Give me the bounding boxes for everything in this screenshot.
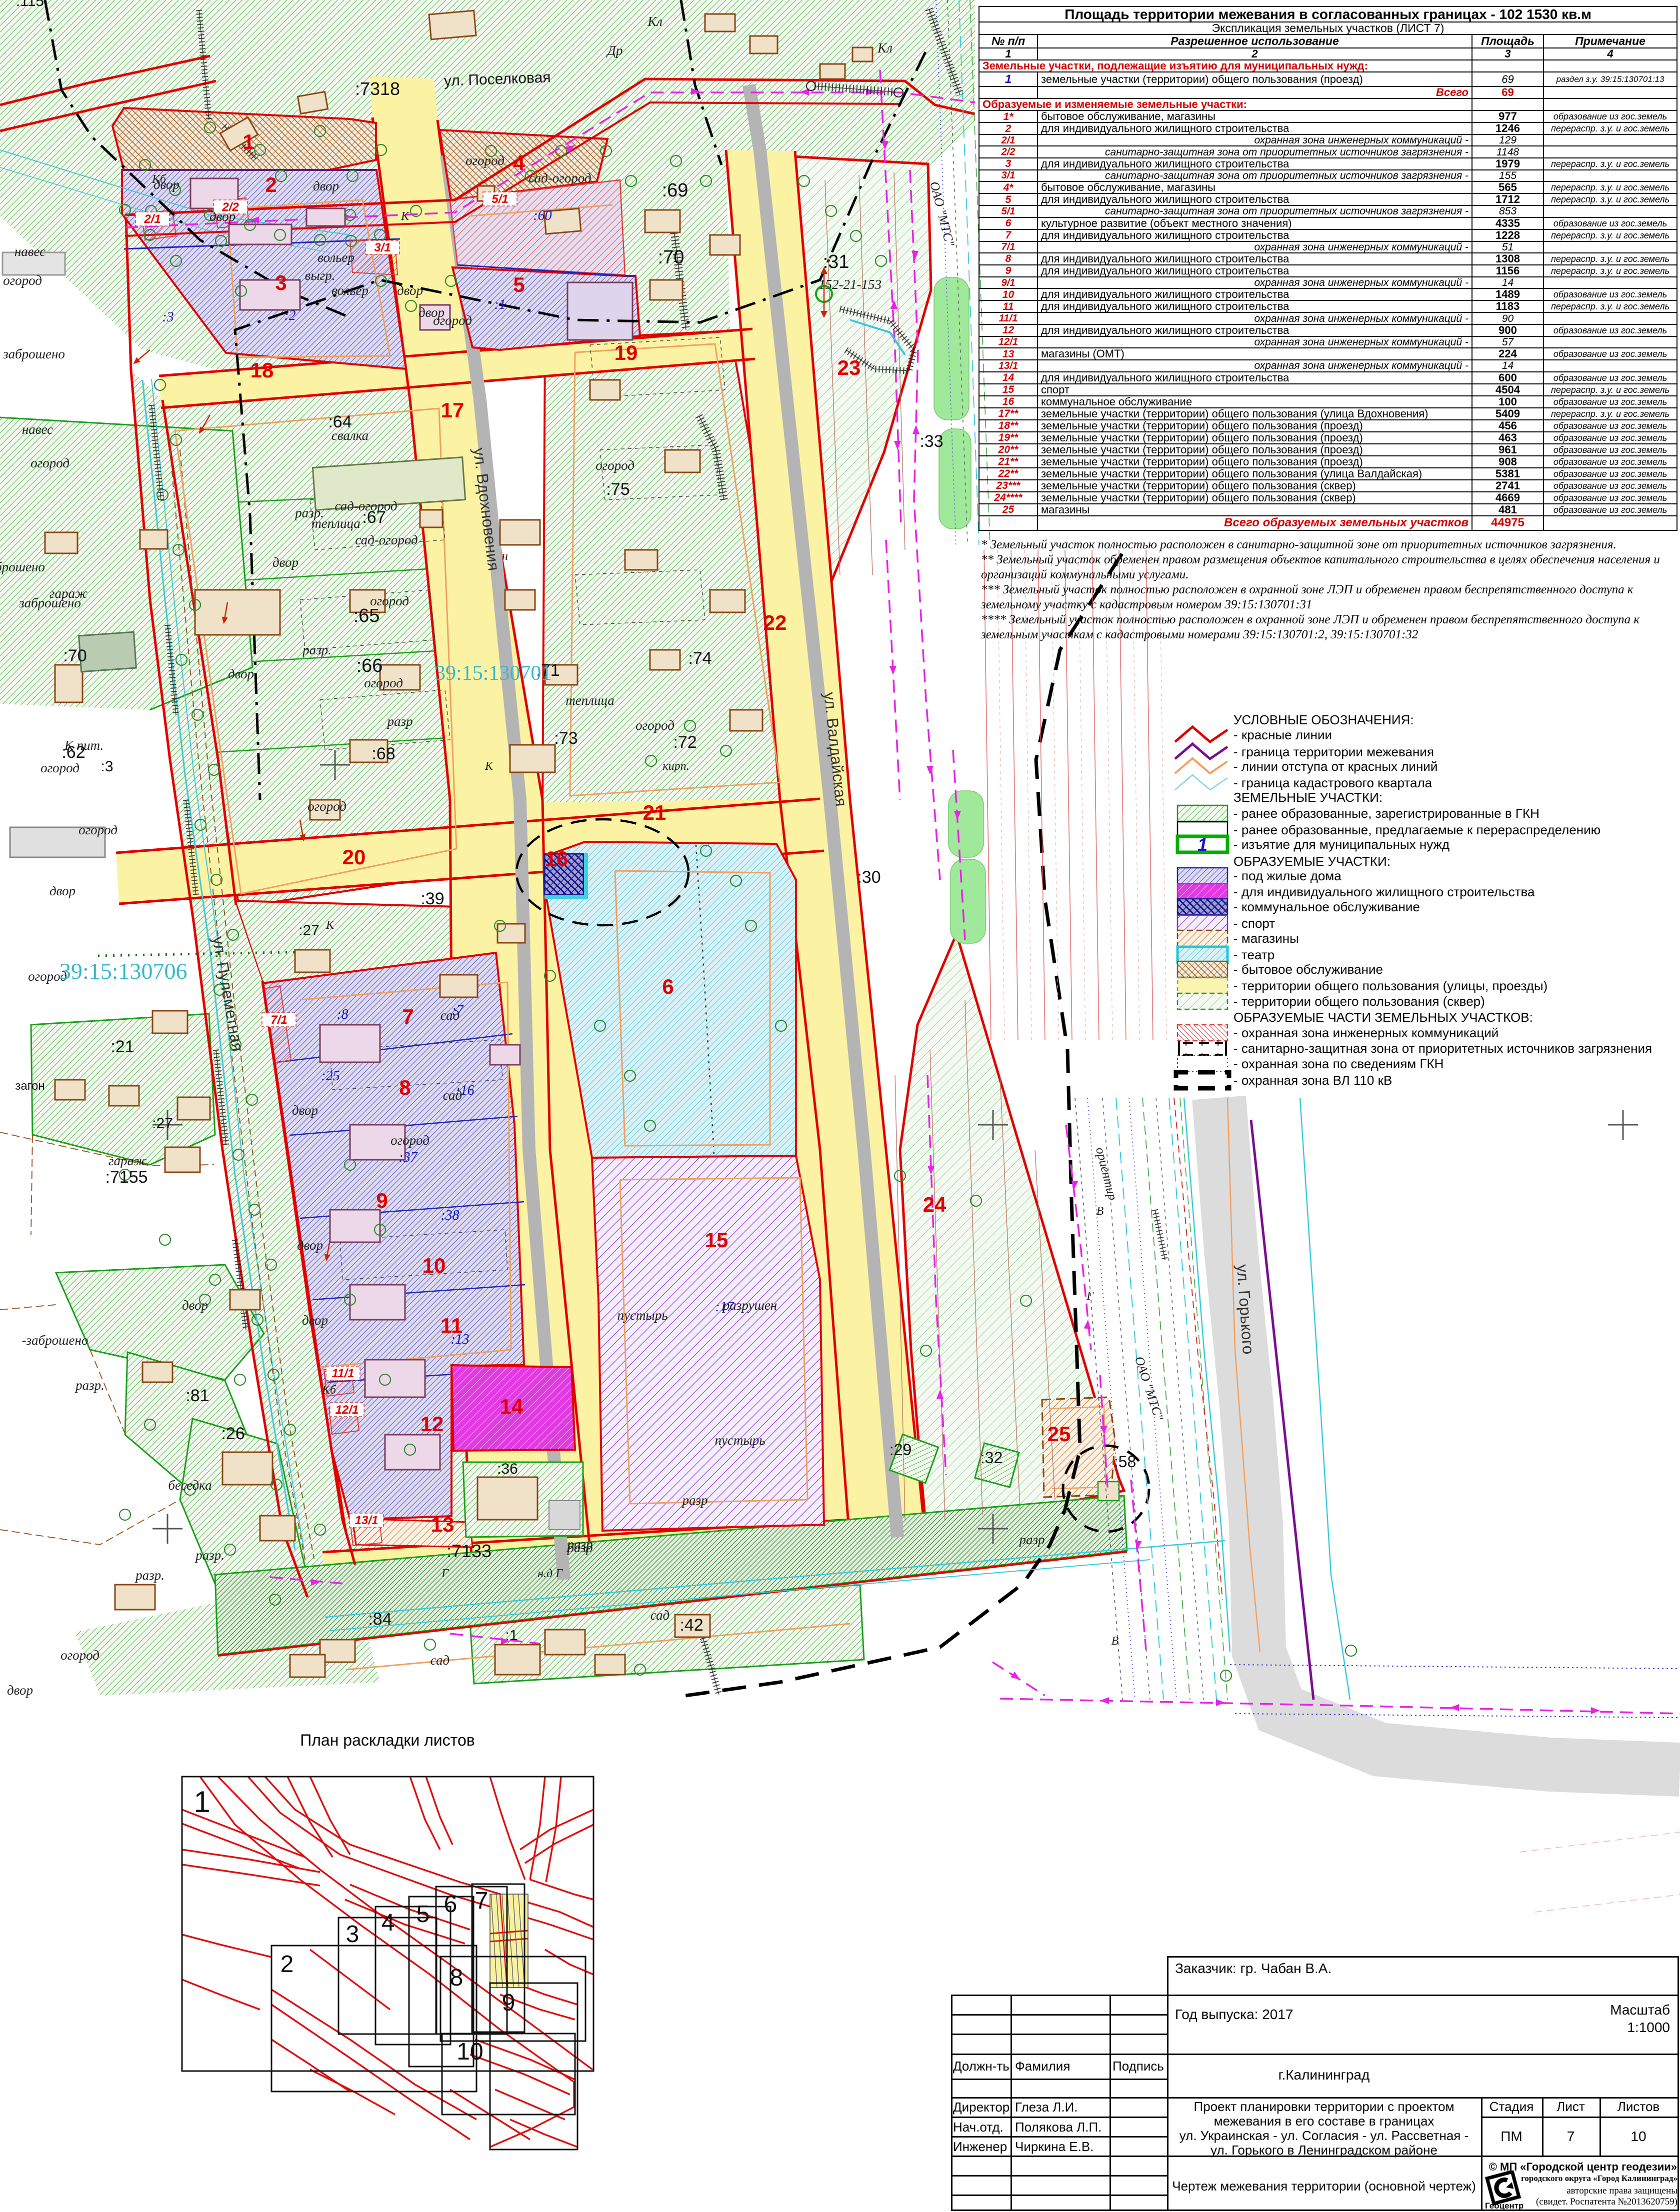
svg-text:УСЛОВНЫЕ ОБОЗНАЧЕНИЯ:: УСЛОВНЫЕ ОБОЗНАЧЕНИЯ:	[1233, 712, 1414, 727]
svg-text::70: :70	[63, 646, 86, 665]
svg-text::1: :1	[505, 1627, 517, 1644]
svg-text:9: 9	[376, 1189, 387, 1212]
svg-text:ЗЕМЕЛЬНЫЕ УЧАСТКИ:: ЗЕМЕЛЬНЫЕ УЧАСТКИ:	[1233, 790, 1382, 805]
svg-text:- под жилые дома: - под жилые дома	[1233, 868, 1341, 883]
svg-text:двор: двор	[7, 1683, 33, 1698]
svg-text:13/1: 13/1	[355, 1514, 378, 1527]
svg-text:- театр: - театр	[1233, 947, 1274, 962]
svg-text::31: :31	[823, 251, 849, 272]
svg-text::42: :42	[679, 1616, 703, 1635]
svg-text:9: 9	[502, 1990, 515, 2016]
svg-text::74: :74	[688, 649, 711, 668]
svg-text:- коммунальное обслуживание: - коммунальное обслуживание	[1233, 899, 1420, 914]
svg-text:- граница кадастрового квартал: - граница кадастрового квартала	[1233, 775, 1432, 790]
svg-text:огород: огород	[370, 593, 409, 608]
svg-text:двор: двор	[209, 209, 235, 224]
svg-text::29: :29	[889, 1441, 911, 1459]
svg-text::72: :72	[673, 733, 696, 752]
svg-text:огород: огород	[595, 458, 634, 473]
svg-text:24: 24	[923, 1193, 946, 1216]
svg-text:152-21-153: 152-21-153	[818, 277, 881, 292]
svg-text:+: +	[1199, 1037, 1205, 1049]
svg-text::8: :8	[336, 1007, 348, 1022]
svg-text::33: :33	[919, 432, 943, 451]
svg-text:К: К	[325, 919, 335, 932]
svg-text:- спорт: - спорт	[1233, 916, 1275, 931]
svg-text:двор: двор	[272, 555, 298, 570]
svg-text:- территории общего пользовани: - территории общего пользования (сквер)	[1233, 994, 1485, 1009]
svg-text:- охранная зона инженерных ком: - охранная зона инженерных коммуникаций	[1233, 1025, 1498, 1040]
svg-text:К пит.: К пит.	[64, 738, 103, 753]
svg-text:огород: огород	[465, 153, 504, 168]
svg-text:3: 3	[275, 271, 286, 294]
svg-text:14: 14	[500, 1395, 523, 1418]
svg-text::26: :26	[221, 1424, 244, 1443]
svg-text:Др: Др	[606, 43, 623, 58]
svg-text:- красные линии: - красные линии	[1233, 727, 1332, 742]
svg-text::66: :66	[356, 655, 383, 676]
svg-text:20: 20	[342, 845, 366, 869]
svg-text:7: 7	[402, 1005, 413, 1028]
svg-text::30: :30	[857, 868, 880, 887]
svg-text:3/1: 3/1	[374, 241, 390, 254]
svg-text:- бытовое обслуживание: - бытовое обслуживание	[1233, 962, 1383, 977]
svg-text::70: :70	[658, 247, 684, 268]
svg-text:5: 5	[416, 1901, 430, 1928]
svg-text:3: 3	[346, 1921, 359, 1948]
svg-text:+: +	[1183, 1037, 1189, 1049]
svg-text::7155: :7155	[105, 1168, 147, 1187]
svg-text::115: :115	[16, 0, 44, 9]
svg-text:разр: разр	[386, 714, 412, 729]
svg-text::58: :58	[1114, 1453, 1136, 1471]
svg-text:Г: Г	[441, 1567, 449, 1580]
svg-text::81: :81	[185, 1386, 209, 1405]
svg-text:навес: навес	[14, 244, 45, 259]
svg-text::75: :75	[606, 480, 629, 499]
svg-text:теплица: теплица	[565, 693, 614, 708]
svg-text:огород: огород	[635, 718, 674, 733]
svg-text:разр.: разр.	[301, 642, 331, 657]
svg-text:двор: двор	[182, 1298, 208, 1313]
svg-text:ОБРАЗУЕМЫЕ ЧАСТИ ЗЕМЕЛЬНЫХ УЧА: ОБРАЗУЕМЫЕ ЧАСТИ ЗЕМЕЛЬНЫХ УЧАСТКОВ:	[1233, 1010, 1533, 1025]
svg-text:двор: двор	[292, 1103, 318, 1118]
svg-text:Геоцентр: Геоцентр	[1485, 2201, 1523, 2210]
svg-text:К: К	[400, 210, 410, 223]
svg-text:ОБРАЗУЕМЫЕ УЧАСТКИ:: ОБРАЗУЕМЫЕ УЧАСТКИ:	[1233, 854, 1390, 869]
svg-text:разр: разр	[566, 1537, 592, 1552]
svg-text:вольер: вольер	[317, 250, 354, 265]
svg-text:10: 10	[456, 2039, 483, 2065]
svg-text:Кл: Кл	[877, 40, 892, 55]
svg-text:+: +	[1215, 1037, 1221, 1049]
svg-text:двор: двор	[297, 1238, 323, 1253]
svg-text:- охранная зона ВЛ 110 кВ: - охранная зона ВЛ 110 кВ	[1233, 1073, 1392, 1088]
svg-text:разр: разр	[1018, 1532, 1044, 1547]
svg-text:гараж: гараж	[108, 1153, 146, 1168]
svg-text:сад: сад	[650, 1608, 669, 1623]
svg-text:8: 8	[399, 1076, 410, 1099]
svg-text:Кб: Кб	[151, 173, 166, 186]
svg-text::2: :2	[284, 308, 295, 323]
svg-text:7: 7	[475, 1888, 488, 1914]
svg-text:огород: огород	[3, 273, 42, 288]
svg-text:К: К	[484, 760, 494, 773]
svg-text:- территории общего пользовани: - территории общего пользования (улицы, …	[1233, 978, 1547, 993]
svg-text::1: :1	[494, 297, 505, 312]
svg-text:двор: двор	[397, 283, 423, 298]
svg-text:6: 6	[444, 1891, 457, 1918]
svg-text:19: 19	[614, 341, 638, 364]
svg-text:11/1: 11/1	[332, 1367, 354, 1380]
svg-text::16: :16	[455, 1083, 474, 1098]
svg-text:сад-огород: сад-огород	[334, 498, 397, 513]
svg-text:15: 15	[705, 1228, 728, 1252]
svg-text:разр.: разр.	[294, 505, 324, 520]
svg-text:1: 1	[1197, 834, 1207, 855]
svg-text:39:15:130706: 39:15:130706	[59, 958, 187, 984]
svg-text:25: 25	[1047, 1422, 1071, 1446]
svg-text:сад-огород: сад-огород	[528, 170, 591, 185]
svg-text::7: :7	[451, 1003, 463, 1018]
svg-text::25: :25	[321, 1068, 339, 1084]
svg-text::39: :39	[420, 889, 444, 908]
svg-text:5/1: 5/1	[491, 192, 508, 206]
svg-text:В: В	[1096, 1205, 1104, 1218]
svg-text:2: 2	[280, 1951, 294, 1978]
svg-text:1: 1	[242, 130, 254, 153]
svg-text::65: :65	[353, 605, 380, 626]
svg-text:сад: сад	[430, 1653, 449, 1668]
svg-text:План раскладки листов: План раскладки листов	[300, 1731, 475, 1749]
svg-text:гараж: гараж	[49, 586, 87, 601]
svg-text:загон: загон	[15, 1079, 44, 1093]
svg-text:23: 23	[837, 356, 861, 379]
svg-text:разр: разр	[681, 1493, 707, 1508]
svg-text:2/1: 2/1	[143, 212, 160, 226]
svg-text:заброшено: заброшено	[2, 346, 65, 361]
svg-text:- ранее образованные, зарегист: - ранее образованные, зарегистрированные…	[1233, 806, 1539, 821]
svg-text:н: н	[502, 550, 508, 563]
svg-text:выгр.: выгр.	[305, 268, 335, 283]
svg-text:- санитарно-защитная зона от п: - санитарно-защитная зона от приоритетны…	[1233, 1041, 1652, 1056]
svg-text:5: 5	[513, 273, 524, 296]
svg-text:н.д Г: н.д Г	[537, 1567, 563, 1580]
svg-text:свалка: свалка	[331, 428, 368, 443]
svg-text:огород: огород	[364, 675, 403, 690]
svg-text:огород: огород	[78, 822, 117, 837]
svg-text:- ранее образованные, предлага: - ранее образованные, предлагаемые к пер…	[1233, 822, 1600, 837]
svg-text:- магазины: - магазины	[1233, 931, 1299, 946]
svg-text:брошено: брошено	[0, 559, 45, 574]
svg-text::13: :13	[450, 1332, 469, 1347]
svg-text::21: :21	[110, 1037, 134, 1056]
svg-text::38: :38	[440, 1208, 459, 1223]
svg-text:пустырь: пустырь	[617, 1308, 667, 1323]
svg-text::36: :36	[497, 1461, 518, 1477]
svg-text:двор: двор	[302, 1313, 328, 1328]
svg-text:кирп.: кирп.	[662, 760, 689, 773]
svg-text:двор: двор	[49, 883, 75, 898]
svg-text::73: :73	[554, 729, 577, 748]
svg-text:В: В	[1111, 1635, 1119, 1648]
svg-text::7318: :7318	[355, 78, 400, 99]
svg-text:-заброшено: -заброшено	[22, 1333, 88, 1348]
svg-text:огород: огород	[30, 455, 69, 470]
svg-text:21: 21	[643, 801, 666, 824]
svg-text:- охранная зона по сведениям Г: - охранная зона по сведениям ГКН	[1233, 1056, 1443, 1071]
svg-text::68: :68	[371, 744, 395, 763]
svg-text:пустырь: пустырь	[714, 1433, 765, 1448]
svg-text:огород: огород	[390, 1133, 429, 1148]
svg-text:4: 4	[513, 151, 525, 174]
svg-text:двор: двор	[228, 666, 254, 681]
svg-text:огород: огород	[307, 799, 346, 814]
svg-text:1: 1	[193, 1785, 210, 1819]
svg-text::60: :60	[533, 208, 551, 223]
svg-text:2: 2	[265, 173, 276, 196]
svg-text::37: :37	[398, 1150, 417, 1165]
svg-text:10: 10	[422, 1254, 446, 1277]
svg-text::84: :84	[368, 1610, 391, 1629]
svg-text:12/1: 12/1	[335, 1403, 359, 1417]
svg-text:6: 6	[662, 975, 673, 998]
svg-text:сад-огород: сад-огород	[355, 532, 417, 547]
svg-text:Кб: Кб	[321, 1384, 336, 1397]
svg-text:- изъятие для муниципальных ну: - изъятие для муниципальных нужд	[1233, 837, 1449, 852]
svg-text:18: 18	[250, 358, 274, 382]
svg-text::17: :17	[715, 1299, 734, 1315]
svg-text:- для индивидуального жилищног: - для индивидуального жилищного строител…	[1233, 884, 1535, 899]
svg-text:вольер: вольер	[331, 283, 368, 298]
svg-text::69: :69	[662, 180, 688, 201]
svg-text:17: 17	[441, 398, 464, 422]
svg-text:разр.: разр.	[134, 1568, 164, 1583]
svg-text::3: :3	[162, 309, 173, 325]
svg-text:22: 22	[763, 611, 787, 634]
svg-text:разр.: разр.	[194, 1548, 224, 1563]
svg-text:разр.: разр.	[74, 1378, 104, 1393]
svg-text::27: :27	[298, 922, 319, 939]
svg-text:огород: огород	[60, 1648, 99, 1663]
svg-text::7133: :7133	[446, 1541, 491, 1561]
svg-text:13: 13	[431, 1513, 454, 1536]
svg-text:7/1: 7/1	[270, 1013, 287, 1027]
svg-text:двор: двор	[313, 178, 339, 193]
svg-text:беседка: беседка	[168, 1478, 211, 1493]
svg-text:8: 8	[450, 1965, 463, 1991]
svg-text:16: 16	[545, 847, 568, 870]
svg-text:огород: огород	[40, 760, 79, 775]
svg-text::27: :27	[152, 1115, 173, 1132]
svg-text:- линии отступа от красных лин: - линии отступа от красных линий	[1233, 759, 1437, 774]
svg-text:Г: Г	[1086, 1290, 1094, 1303]
svg-text:навес: навес	[22, 422, 53, 437]
svg-text:- граница территории межевания: - граница территории межевания	[1233, 744, 1434, 759]
svg-text:4: 4	[381, 1910, 395, 1936]
svg-text::3: :3	[100, 758, 113, 775]
svg-text:огород: огород	[433, 313, 472, 328]
svg-text:39:15:130701: 39:15:130701	[435, 662, 551, 685]
svg-text:12: 12	[420, 1412, 444, 1436]
svg-text:Кл: Кл	[647, 14, 662, 29]
svg-text::32: :32	[980, 1449, 1002, 1467]
